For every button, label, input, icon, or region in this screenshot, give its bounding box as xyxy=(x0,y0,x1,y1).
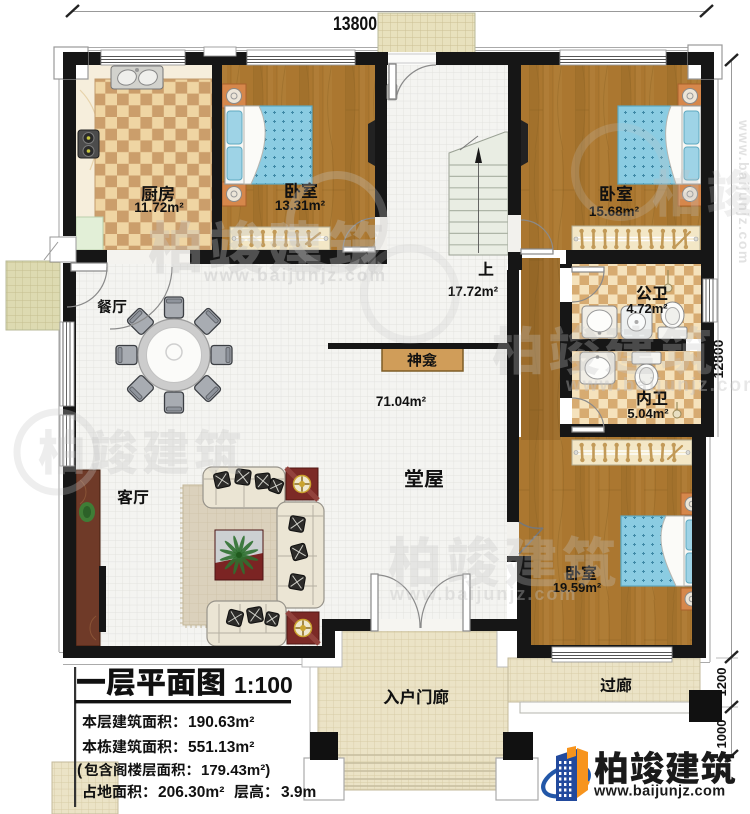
svg-text:13800: 13800 xyxy=(333,14,377,35)
svg-text:1000: 1000 xyxy=(714,720,729,749)
svg-text:www.baijunjz.com: www.baijunjz.com xyxy=(593,784,726,800)
svg-text:4.72m²: 4.72m² xyxy=(626,301,668,316)
svg-text:1:100: 1:100 xyxy=(234,672,293,698)
svg-text:11.72m²: 11.72m² xyxy=(134,200,184,215)
svg-text:13.31m²: 13.31m² xyxy=(275,198,326,213)
svg-text:www.baijunjz.com: www.baijunjz.com xyxy=(389,584,577,604)
svg-text:551.13m²: 551.13m² xyxy=(188,739,254,756)
svg-text:206.30m²: 206.30m² xyxy=(158,784,224,801)
svg-text:5.04m²: 5.04m² xyxy=(627,406,669,421)
svg-text:3.9m: 3.9m xyxy=(281,784,316,801)
svg-text:71.04m²: 71.04m² xyxy=(376,394,427,409)
svg-text:179.43m²): 179.43m²) xyxy=(201,762,270,779)
svg-text:(: ( xyxy=(77,762,83,779)
svg-text:190.63m²: 190.63m² xyxy=(188,714,254,731)
svg-text:www.baijunjz.com: www.baijunjz.com xyxy=(565,375,750,396)
svg-text:www.baijunjz.com: www.baijunjz.com xyxy=(736,119,750,265)
svg-text:www.baijunjz.com: www.baijunjz.com xyxy=(203,265,387,285)
